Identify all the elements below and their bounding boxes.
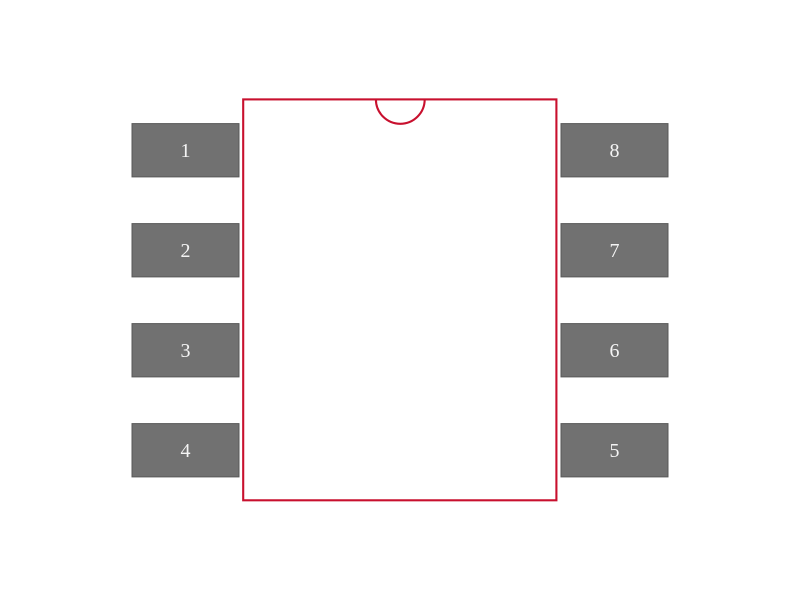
svg-text:5: 5 — [610, 440, 620, 462]
svg-text:6: 6 — [610, 340, 620, 362]
svg-text:7: 7 — [610, 240, 620, 262]
svg-text:2: 2 — [181, 240, 191, 262]
svg-text:4: 4 — [181, 440, 191, 462]
svg-text:1: 1 — [181, 140, 191, 162]
svg-text:3: 3 — [181, 340, 191, 362]
svg-text:8: 8 — [610, 140, 620, 162]
